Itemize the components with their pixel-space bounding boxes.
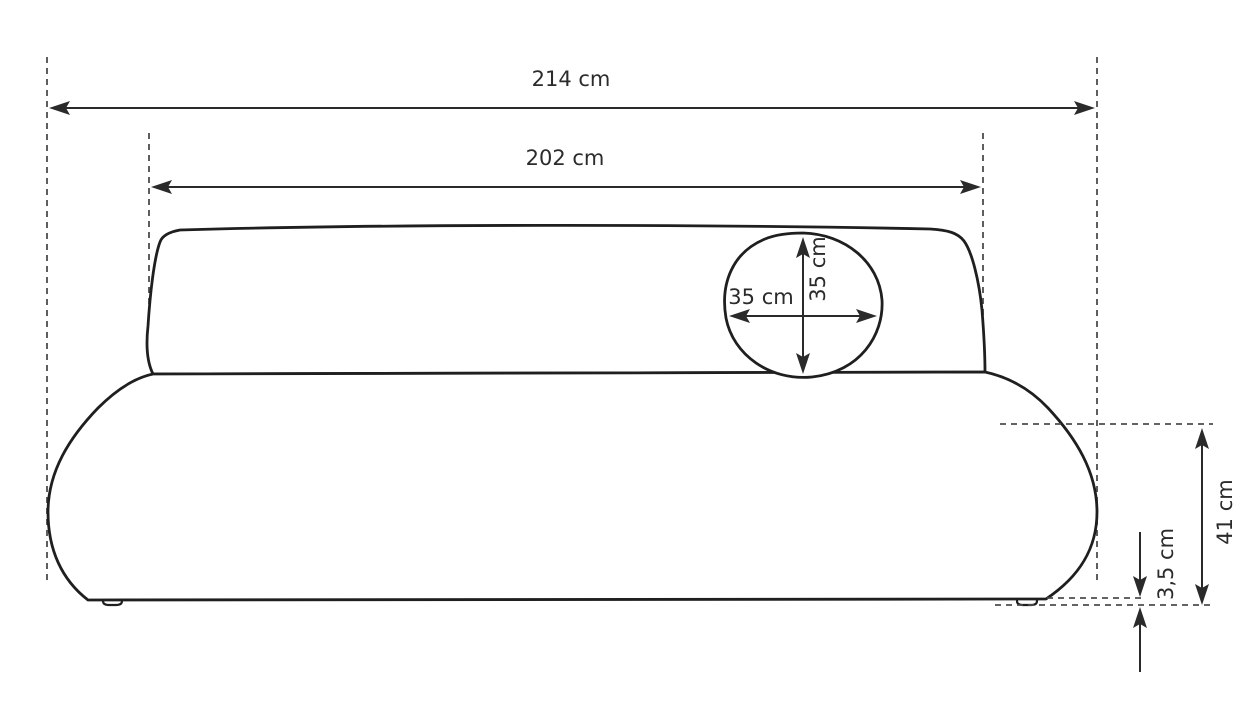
sofa-outline	[48, 225, 1097, 605]
base-shape	[48, 372, 1097, 600]
diagram-canvas: 214 cm 202 cm 35 cm 35 cm 41 cm 3,5 cm	[0, 0, 1256, 705]
dim-overall-width: 214 cm	[49, 67, 1095, 115]
overall-width-label: 214 cm	[532, 67, 611, 91]
dim-leg-height: 3,5 cm	[1133, 528, 1178, 672]
seat-width-label: 202 cm	[526, 146, 605, 170]
base-height-label: 41 cm	[1213, 479, 1237, 544]
leg-height-label: 3,5 cm	[1154, 528, 1178, 600]
pillow-height-label: 35 cm	[806, 236, 830, 301]
sofa-dimension-diagram: 214 cm 202 cm 35 cm 35 cm 41 cm 3,5 cm	[0, 0, 1256, 705]
dim-seat-width: 202 cm	[151, 146, 981, 194]
dim-base-height: 41 cm	[1195, 428, 1237, 605]
pillow-width-label: 35 cm	[728, 285, 793, 309]
